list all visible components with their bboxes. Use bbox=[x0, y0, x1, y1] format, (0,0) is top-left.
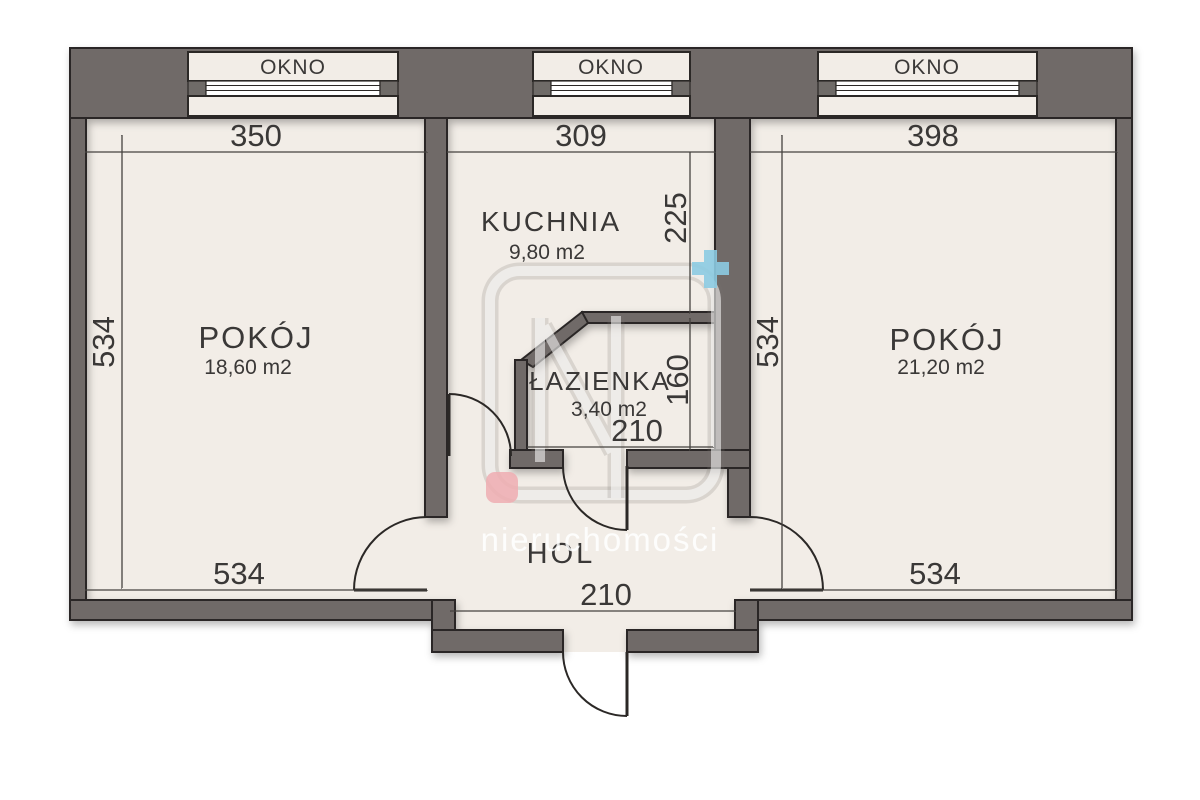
dim-kuchnia-depth: 225 bbox=[658, 192, 693, 244]
window-right-label: OKNO bbox=[894, 56, 960, 79]
window-left: OKNO bbox=[188, 52, 398, 116]
door-entrance bbox=[563, 652, 627, 716]
wall-hall-top-right bbox=[627, 450, 750, 468]
room-area-pokoj-right: 21,20 m2 bbox=[897, 356, 985, 379]
watermark-pink-square bbox=[486, 472, 518, 503]
dim-pokoj-left-bottom: 534 bbox=[213, 556, 265, 591]
floor-plan-page: OKNO OKNO OKNO bbox=[0, 0, 1200, 800]
dim-hol-width: 210 bbox=[580, 577, 632, 612]
dim-pokoj-right-width: 398 bbox=[907, 118, 959, 153]
room-area-lazienka: 3,40 m2 bbox=[571, 398, 647, 421]
window-right: OKNO bbox=[818, 52, 1037, 116]
window-center: OKNO bbox=[533, 52, 690, 116]
wall-lazienka-left bbox=[515, 360, 527, 450]
dim-left-height: 534 bbox=[86, 316, 121, 368]
floor-entrance-threshold bbox=[563, 630, 627, 652]
wall-hall-bottom-right bbox=[627, 630, 758, 652]
dim-kuchnia-width: 309 bbox=[555, 118, 607, 153]
floor-plan: OKNO OKNO OKNO bbox=[0, 0, 1200, 800]
room-label-pokoj-left: POKÓJ bbox=[198, 320, 313, 355]
wall-bottom-left bbox=[70, 600, 432, 620]
window-left-label: OKNO bbox=[260, 56, 326, 79]
dim-right-height: 534 bbox=[750, 316, 785, 368]
wall-left bbox=[70, 118, 86, 620]
room-label-pokoj-right: POKÓJ bbox=[889, 322, 1004, 357]
wall-pokoj-left-divider bbox=[425, 118, 447, 517]
watermark-brand-text: nieruchomości bbox=[481, 521, 720, 558]
wall-right bbox=[1116, 118, 1132, 620]
room-area-pokoj-left: 18,60 m2 bbox=[204, 356, 292, 379]
wall-lazienka-top bbox=[582, 312, 715, 323]
wall-hall-bottom-left bbox=[432, 630, 563, 652]
dim-pokoj-right-bottom: 534 bbox=[909, 556, 961, 591]
room-label-kuchnia: KUCHNIA bbox=[481, 206, 621, 237]
room-area-kuchnia: 9,80 m2 bbox=[509, 241, 585, 264]
windows: OKNO OKNO OKNO bbox=[188, 52, 1037, 116]
wall-bottom-right bbox=[758, 600, 1132, 620]
dim-pokoj-left-width: 350 bbox=[230, 118, 282, 153]
room-label-lazienka: ŁAZIENKA bbox=[529, 366, 671, 396]
window-center-label: OKNO bbox=[578, 56, 644, 79]
